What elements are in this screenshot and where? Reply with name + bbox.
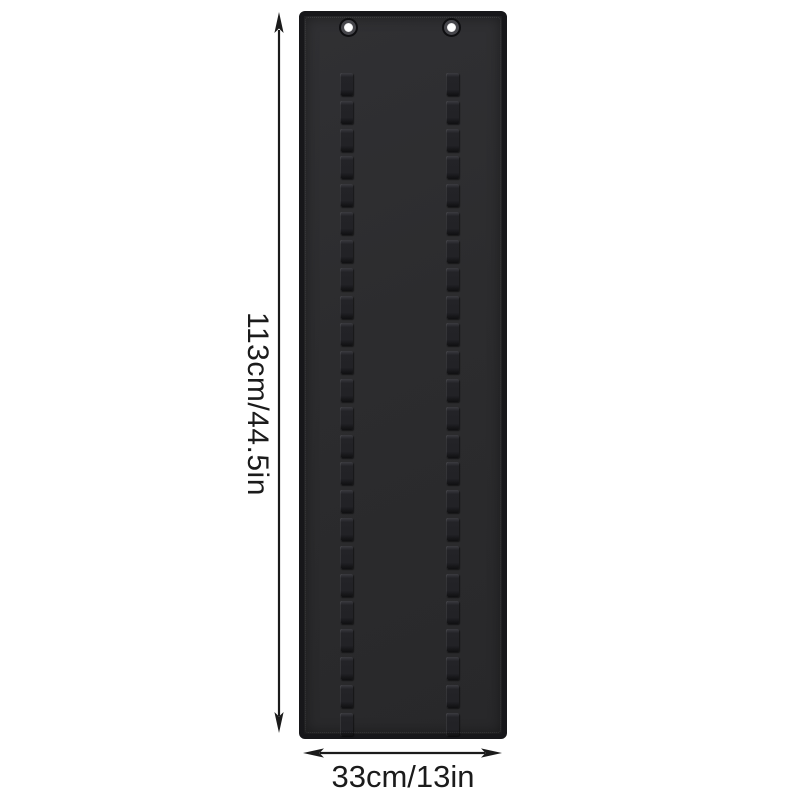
elastic-loop-segment	[340, 212, 353, 235]
elastic-loop-segment	[340, 629, 353, 652]
elastic-loop-segment	[446, 379, 459, 402]
elastic-loop-segment	[446, 574, 459, 597]
loop-column-left	[340, 73, 353, 736]
elastic-loop-segment	[446, 490, 459, 513]
elastic-loop-segment	[446, 351, 459, 374]
elastic-loop-segment	[340, 435, 353, 458]
elastic-loop-segment	[340, 323, 353, 346]
elastic-loop-segment	[340, 462, 353, 485]
elastic-loop-segment	[446, 601, 459, 624]
elastic-loop-segment	[446, 184, 459, 207]
height-dimension-label: 113cm/44.5in	[240, 312, 274, 502]
elastic-loop-segment	[446, 407, 459, 430]
elastic-loop-segment	[446, 657, 459, 680]
elastic-loop-segment	[446, 518, 459, 541]
elastic-loop-segment	[340, 518, 353, 541]
elastic-loop-segment	[340, 73, 353, 96]
elastic-loop-segment	[340, 351, 353, 374]
elastic-loop-segment	[446, 462, 459, 485]
elastic-loop-segment	[340, 546, 353, 569]
elastic-loop-segment	[340, 657, 353, 680]
loop-column-right	[446, 73, 459, 736]
elastic-loop-segment	[446, 212, 459, 235]
width-dimension-arrow	[303, 748, 502, 757]
elastic-loop-segment	[340, 268, 353, 291]
elastic-loop-segment	[446, 268, 459, 291]
elastic-loop-segment	[446, 240, 459, 263]
grommet-hole-left	[341, 20, 356, 35]
elastic-loop-segment	[340, 685, 353, 708]
elastic-loop-segment	[340, 101, 353, 124]
elastic-loop-segment	[446, 713, 459, 736]
elastic-loop-segment	[446, 435, 459, 458]
elastic-loop-segment	[446, 629, 459, 652]
elastic-loop-segment	[340, 379, 353, 402]
organizer-panel	[299, 11, 507, 739]
width-dimension-label: 33cm/13in	[299, 759, 507, 795]
product-dimension-diagram: 113cm/44.5in 33cm/13in	[0, 0, 800, 800]
elastic-loop-segment	[446, 156, 459, 179]
elastic-loop-segment	[446, 685, 459, 708]
elastic-loop-segment	[340, 129, 353, 152]
grommet-hole-right	[444, 20, 459, 35]
elastic-loop-segment	[340, 296, 353, 319]
elastic-loop-segment	[340, 490, 353, 513]
elastic-loop-segment	[446, 323, 459, 346]
elastic-loop-segment	[340, 156, 353, 179]
elastic-loop-segment	[340, 240, 353, 263]
elastic-loop-segment	[446, 296, 459, 319]
elastic-loop-segment	[340, 407, 353, 430]
height-dimension-arrow	[274, 12, 283, 733]
elastic-loop-segment	[446, 101, 459, 124]
elastic-loop-segment	[340, 574, 353, 597]
elastic-loop-segment	[446, 73, 459, 96]
elastic-loop-segment	[340, 184, 353, 207]
elastic-loop-segment	[340, 713, 353, 736]
elastic-loop-segment	[340, 601, 353, 624]
elastic-loop-segment	[446, 129, 459, 152]
elastic-loop-segment	[446, 546, 459, 569]
